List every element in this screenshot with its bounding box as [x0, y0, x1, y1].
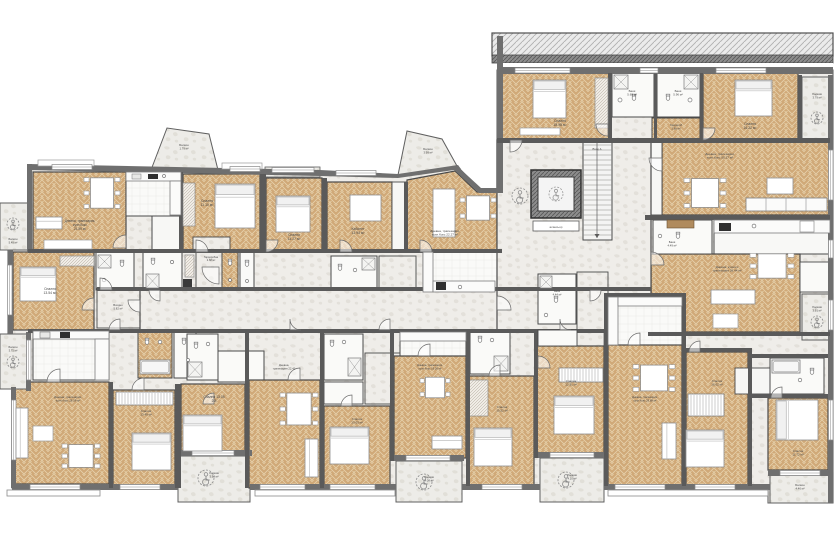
svg-text:16.22 м²: 16.22 м²: [744, 126, 758, 130]
svg-text:2.68 м²: 2.68 м²: [207, 258, 216, 262]
svg-text:4.49 м²: 4.49 м²: [667, 243, 676, 247]
svg-text:кухн.бокс 28.06 м²: кухн.бокс 28.06 м²: [56, 399, 80, 403]
svg-text:2.86 м²: 2.86 м²: [671, 126, 680, 130]
svg-text:5.96 м²: 5.96 м²: [673, 93, 682, 97]
svg-text:кухн.бокс 50.27 м²: кухн.бокс 50.27 м²: [707, 156, 733, 160]
svg-text:асансьор: асансьор: [550, 225, 563, 229]
svg-text:16.02 м²: 16.02 м²: [711, 383, 722, 387]
svg-text:кухн.бокс 29.88 м²: кухн.бокс 29.88 м²: [634, 398, 657, 402]
svg-text:14.27 м²: 14.27 м²: [288, 237, 302, 241]
svg-text:кухн.бокс 19.05 м²: кухн.бокс 19.05 м²: [419, 366, 442, 370]
svg-text:12.91 м²: 12.91 м²: [565, 383, 576, 387]
svg-text:11.72 м²: 11.72 м²: [792, 453, 803, 457]
svg-text:5.49 м²: 5.49 м²: [9, 240, 18, 244]
svg-text:5.82 м²: 5.82 м²: [113, 306, 122, 310]
svg-text:3.99 м²: 3.99 м²: [423, 150, 432, 154]
svg-text:11.10 м²: 11.10 м²: [201, 203, 215, 207]
svg-text:кухн.бокс 22.27 м²: кухн.бокс 22.27 м²: [432, 233, 458, 237]
svg-text:2.8: 2.8: [212, 399, 217, 403]
svg-text:трапезария 22.41: трапезария 22.41: [273, 366, 296, 370]
svg-text:15.52 м²: 15.52 м²: [496, 409, 507, 413]
svg-text:3.91 м²: 3.91 м²: [812, 308, 821, 312]
svg-text:4.44 м²: 4.44 м²: [553, 292, 562, 296]
svg-text:4.10 м²: 4.10 м²: [567, 476, 576, 480]
svg-text:3.75 м²: 3.75 м²: [9, 348, 18, 352]
svg-text:13.03 м²: 13.03 м²: [351, 421, 362, 425]
svg-text:5.69 м²: 5.69 м²: [627, 93, 636, 97]
svg-text:18.98 м²: 18.98 м²: [554, 123, 568, 127]
svg-text:21.59 м²: 21.59 м²: [74, 227, 86, 231]
svg-text:Вход А: Вход А: [593, 147, 602, 151]
svg-text:трапезария 38.44 м²: трапезария 38.44 м²: [712, 269, 741, 273]
svg-text:1.79 м²: 1.79 м²: [179, 146, 188, 150]
svg-text:13.94 м²: 13.94 м²: [352, 231, 366, 235]
svg-text:13.49 м²: 13.49 м²: [140, 413, 151, 417]
svg-text:3.79 м²: 3.79 м²: [812, 95, 821, 99]
svg-text:4.46 м²: 4.46 м²: [795, 486, 804, 490]
svg-text:13.54 м²: 13.54 м²: [44, 291, 58, 295]
